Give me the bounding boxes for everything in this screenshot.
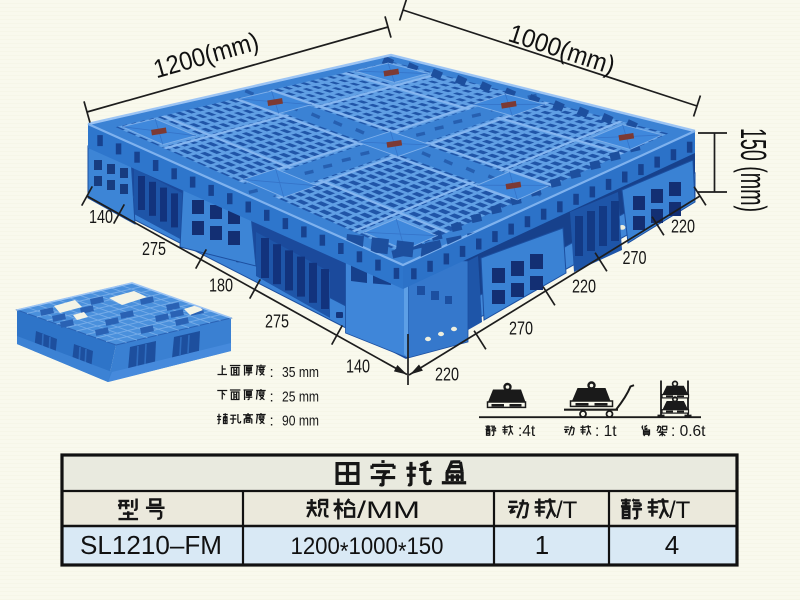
svg-text:140: 140	[89, 207, 113, 227]
svg-text:/T: /T	[669, 497, 691, 524]
svg-text:275: 275	[265, 312, 289, 332]
svg-text:90 mm: 90 mm	[282, 413, 319, 430]
svg-text:35 mm: 35 mm	[282, 364, 319, 381]
svg-text:1: 1	[535, 530, 549, 560]
svg-text:150 (mm): 150 (mm)	[732, 128, 772, 212]
svg-text:180: 180	[209, 276, 233, 296]
svg-text:4: 4	[665, 530, 679, 560]
svg-text::4t: :4t	[518, 423, 536, 440]
svg-text:270: 270	[509, 319, 533, 339]
svg-text:270: 270	[623, 248, 647, 268]
svg-text::: :	[270, 364, 274, 381]
svg-text:25 mm: 25 mm	[282, 389, 319, 406]
svg-text:/MM: /MM	[357, 497, 420, 524]
svg-text::: :	[270, 413, 274, 430]
svg-text:220: 220	[671, 217, 695, 237]
svg-text::: :	[270, 389, 274, 406]
svg-text:SL1210–FM: SL1210–FM	[80, 530, 222, 560]
svg-text:220: 220	[572, 277, 596, 297]
svg-text:275: 275	[142, 239, 166, 259]
svg-text:140: 140	[346, 357, 370, 377]
svg-text:: 0.6t: : 0.6t	[671, 423, 706, 440]
svg-text:220: 220	[435, 365, 459, 385]
svg-text:/T: /T	[556, 497, 578, 524]
svg-text:: 1t: : 1t	[595, 423, 617, 440]
